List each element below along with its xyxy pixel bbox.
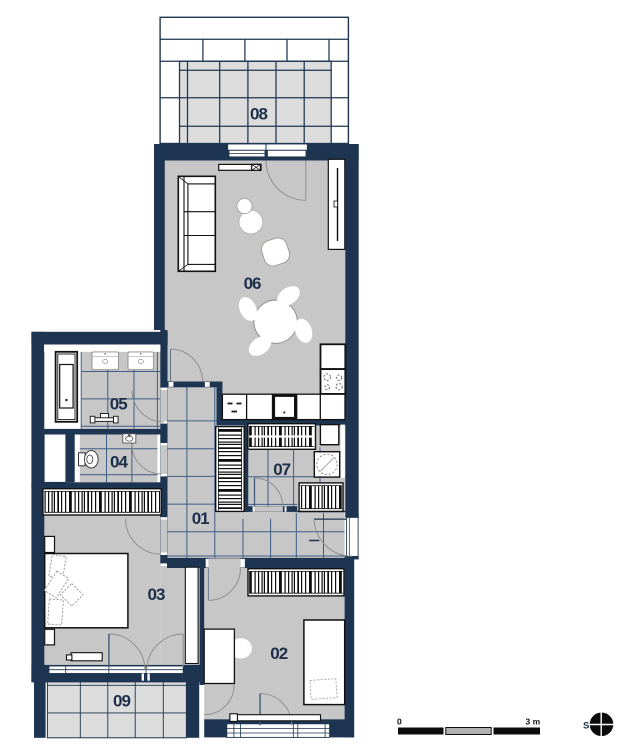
svg-text:01: 01: [192, 509, 209, 528]
svg-text:04: 04: [110, 453, 128, 472]
svg-text:07: 07: [273, 460, 290, 479]
svg-text:06: 06: [244, 274, 261, 293]
svg-text:S: S: [583, 721, 589, 732]
svg-text:03: 03: [148, 585, 165, 604]
svg-text:02: 02: [270, 644, 287, 663]
svg-text:08: 08: [250, 105, 267, 124]
svg-text:0: 0: [397, 717, 402, 727]
svg-text:05: 05: [110, 395, 127, 414]
svg-text:3 m: 3 m: [526, 717, 541, 727]
svg-text:09: 09: [113, 692, 130, 711]
